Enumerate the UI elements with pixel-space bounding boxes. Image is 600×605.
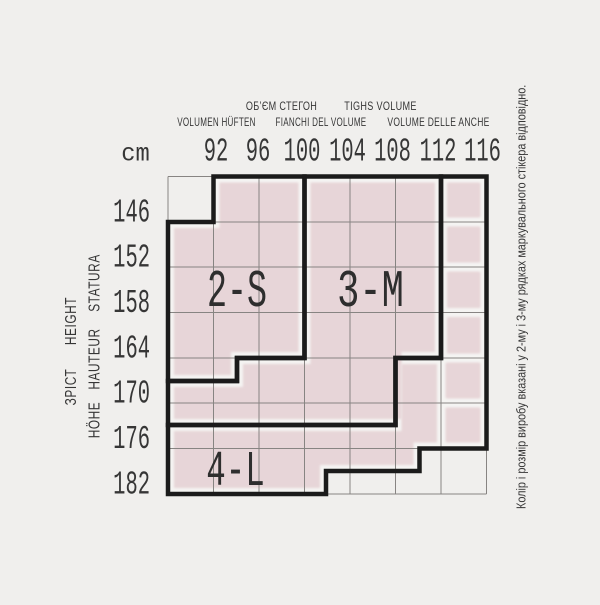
svg-text:FIANCHI DEL VOLUME: FIANCHI DEL VOLUME <box>276 117 367 130</box>
svg-text:TIGHS VOLUME: TIGHS VOLUME <box>344 101 416 113</box>
svg-text:HÖHE: HÖHE <box>84 402 103 439</box>
svg-text:3-M: 3-M <box>337 262 404 322</box>
svg-text:VOLUME DELLE ANCHE: VOLUME DELLE ANCHE <box>387 117 489 130</box>
svg-text:cm: cm <box>121 141 150 169</box>
svg-text:Колір і розмір виробу вказані: Колір і розмір виробу вказані у 2-му і 3… <box>514 85 529 509</box>
svg-text:170: 170 <box>113 376 150 413</box>
svg-text:176: 176 <box>113 422 150 459</box>
svg-text:104: 104 <box>329 134 366 171</box>
svg-text:152: 152 <box>113 240 150 277</box>
svg-text:112: 112 <box>420 134 457 171</box>
svg-text:100: 100 <box>284 134 321 171</box>
svg-text:92: 92 <box>204 134 229 171</box>
svg-text:HAUTEUR: HAUTEUR <box>85 328 103 389</box>
svg-text:ЗРІСТ: ЗРІСТ <box>61 369 79 406</box>
svg-text:ОБ’ЄМ СТЕГОН: ОБ’ЄМ СТЕГОН <box>246 101 317 113</box>
svg-text:164: 164 <box>113 331 150 368</box>
svg-text:4-L: 4-L <box>206 443 265 500</box>
svg-text:182: 182 <box>113 467 150 504</box>
svg-text:STATURA: STATURA <box>85 254 103 312</box>
svg-text:108: 108 <box>374 134 411 171</box>
svg-text:146: 146 <box>113 195 150 232</box>
svg-text:HEIGHT: HEIGHT <box>61 297 79 345</box>
svg-text:158: 158 <box>113 286 150 323</box>
svg-text:VOLUMEN HÜFTEN: VOLUMEN HÜFTEN <box>177 117 255 130</box>
svg-text:2-S: 2-S <box>207 263 267 323</box>
svg-text:116: 116 <box>464 134 501 171</box>
svg-text:96: 96 <box>246 134 271 171</box>
